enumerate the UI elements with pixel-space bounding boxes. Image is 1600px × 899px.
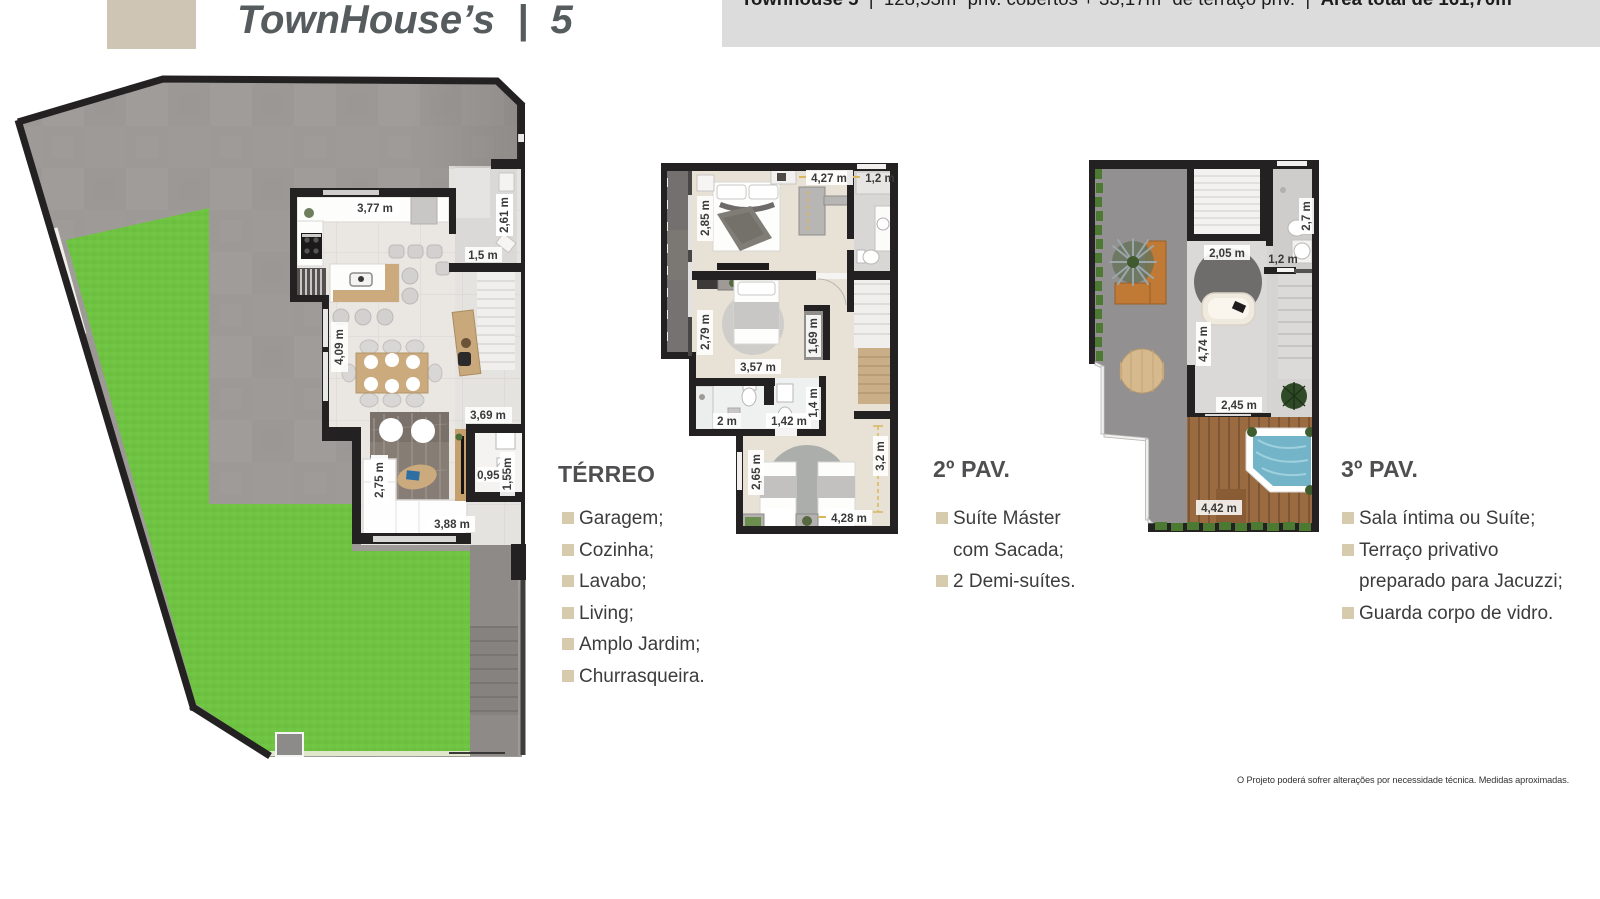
svg-text:2,45 m: 2,45 m bbox=[1221, 400, 1257, 412]
svg-text:1,5 m: 1,5 m bbox=[468, 250, 497, 262]
svg-text:2,79 m: 2,79 m bbox=[700, 314, 712, 350]
svg-text:2,61 m: 2,61 m bbox=[499, 197, 511, 233]
svg-text:3,57 m: 3,57 m bbox=[740, 362, 776, 374]
svg-text:2,65 m: 2,65 m bbox=[751, 454, 763, 490]
svg-text:4,09 m: 4,09 m bbox=[334, 329, 346, 365]
svg-text:2,75 m: 2,75 m bbox=[374, 462, 386, 498]
svg-text:3,77 m: 3,77 m bbox=[357, 203, 393, 215]
svg-text:4,27 m: 4,27 m bbox=[811, 173, 847, 185]
svg-text:1,42 m: 1,42 m bbox=[771, 416, 807, 428]
svg-text:1,55m: 1,55m bbox=[502, 458, 514, 491]
svg-text:1,69 m: 1,69 m bbox=[808, 318, 820, 354]
svg-text:4,42 m: 4,42 m bbox=[1201, 503, 1237, 515]
svg-text:2,05 m: 2,05 m bbox=[1209, 248, 1245, 260]
svg-text:2,7 m: 2,7 m bbox=[1301, 201, 1313, 230]
svg-text:4,74 m: 4,74 m bbox=[1198, 326, 1210, 362]
svg-text:4,28 m: 4,28 m bbox=[831, 513, 867, 525]
svg-text:1,2 m: 1,2 m bbox=[865, 173, 894, 185]
svg-text:1,4 m: 1,4 m bbox=[808, 388, 820, 417]
svg-text:1,2 m: 1,2 m bbox=[1268, 254, 1297, 266]
svg-text:3,2 m: 3,2 m bbox=[875, 441, 887, 470]
svg-text:2 m: 2 m bbox=[717, 416, 737, 428]
svg-text:3,88 m: 3,88 m bbox=[434, 519, 470, 531]
svg-text:2,85 m: 2,85 m bbox=[700, 200, 712, 236]
svg-text:3,69 m: 3,69 m bbox=[470, 410, 506, 422]
